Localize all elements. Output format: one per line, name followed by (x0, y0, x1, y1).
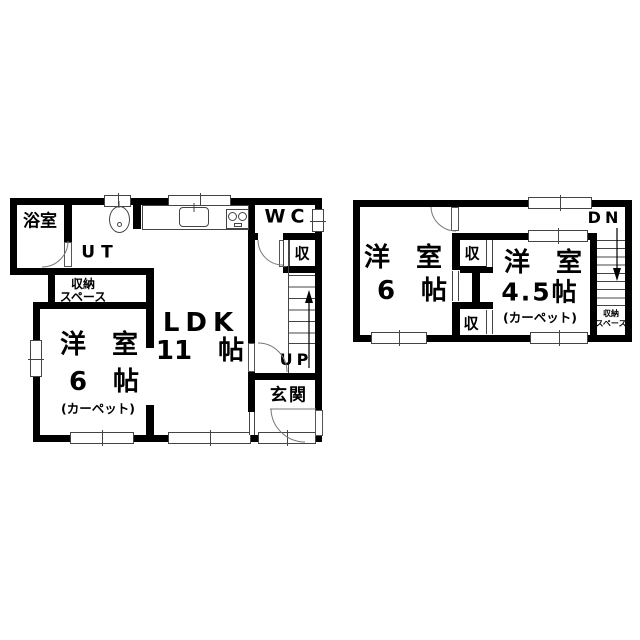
stairs-1f (289, 275, 315, 344)
room-label-west-size: 6 帖 (69, 369, 139, 395)
window-hall (528, 230, 588, 242)
wall-closet (452, 233, 460, 270)
room-label-wc: WC (265, 208, 310, 227)
window (30, 340, 42, 377)
window (168, 432, 251, 444)
room-label-ldk: LDK (163, 310, 239, 336)
wall (10, 268, 148, 275)
window (70, 432, 134, 444)
wall-ldk-divider (146, 405, 154, 442)
room-label-storage-line1: 収納 (71, 278, 95, 290)
window-wc (312, 209, 324, 232)
wall-entrance-top (248, 373, 322, 380)
room-label-west6: 洋 室 (364, 245, 442, 271)
stairs-2f (597, 240, 625, 306)
room-door-leaf (451, 207, 459, 231)
room-label-west6-size: 6 帖 (377, 278, 447, 304)
floor-plan-canvas: 浴室 UT WC 収 収納 スペース LDK 11 帖 洋 室 6 帖 (カーペ… (0, 0, 640, 640)
stove-grill (234, 223, 242, 227)
closet-sliding-door (486, 310, 493, 334)
hall-door-leaf (248, 343, 255, 372)
room-label-entrance: 玄関 (270, 388, 308, 405)
wall-ldk-divider (146, 268, 154, 348)
entrance-door-leaf (315, 410, 323, 436)
room-label-storage2f-line1: 収納 (603, 310, 619, 318)
wall (353, 200, 360, 342)
room-label-closet: 収 (294, 247, 309, 262)
room-label-closet-upper: 収 (464, 247, 479, 262)
room-label-ut: UT (81, 245, 118, 262)
window (528, 197, 592, 209)
room-label-storage-line2: スペース (60, 291, 107, 303)
storage-top-line (597, 305, 625, 306)
room-label-bath: 浴室 (23, 214, 57, 231)
room-label-west45-size: 4.5帖 (501, 280, 578, 305)
wall-bath (64, 198, 72, 244)
wall-kitchen-stub (133, 198, 141, 229)
wall-closet (452, 302, 493, 309)
kitchen-sink (179, 207, 209, 227)
label-up: UP (280, 352, 313, 368)
wall (248, 233, 258, 240)
closet-sliding-door (486, 240, 493, 267)
wall-hall-divider (248, 198, 255, 343)
window (371, 332, 427, 344)
bath-door-leaf (64, 242, 72, 267)
wall-closet (452, 309, 460, 335)
washbasin-drain (117, 222, 122, 227)
room-label-west: 洋 室 (60, 332, 138, 358)
room-label-ldk-size: 11 帖 (156, 338, 244, 364)
stove-burner (228, 212, 237, 221)
label-dn: DN (588, 210, 623, 226)
washbasin (109, 206, 130, 233)
wall (10, 198, 322, 205)
entrance-opening (249, 412, 255, 435)
room-label-storage2f-line2: スペース (595, 320, 626, 328)
window (530, 332, 588, 344)
room-label-west45-note: (カーペット) (503, 312, 577, 325)
closet-sliding-door (452, 271, 459, 301)
stair-edge-line (289, 343, 315, 344)
room-label-closet-lower: 収 (463, 317, 478, 332)
room-label-west-note: (カーペット) (61, 403, 135, 416)
entrance-threshold (258, 432, 316, 444)
wall-hall (456, 233, 532, 240)
stove-burner (238, 212, 247, 221)
wall (283, 233, 322, 240)
room-label-west45: 洋 室 (504, 250, 582, 276)
wall (10, 198, 17, 275)
